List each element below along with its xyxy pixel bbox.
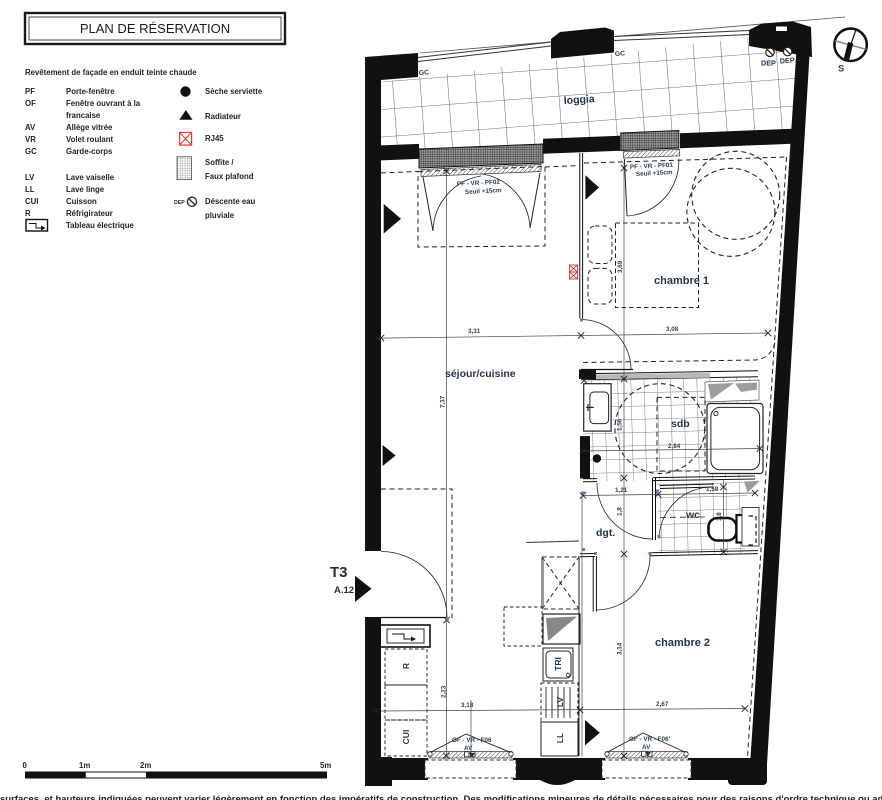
svg-text:1m: 1m xyxy=(79,761,90,770)
svg-text:2,67: 2,67 xyxy=(656,701,669,708)
svg-text:Radiateur: Radiateur xyxy=(205,112,241,121)
svg-text:3,08: 3,08 xyxy=(666,326,679,333)
svg-text:LV: LV xyxy=(25,173,35,182)
svg-text:Porte-fenêtre: Porte-fenêtre xyxy=(66,87,115,96)
svg-text:GC: GC xyxy=(419,69,430,77)
svg-text:3,18: 3,18 xyxy=(461,702,474,709)
svg-text:TRI: TRI xyxy=(553,657,563,671)
svg-text:Tableau électrique: Tableau électrique xyxy=(66,221,135,230)
svg-text:surfaces, et hauteurs indiquée: surfaces, et hauteurs indiquées peuvent … xyxy=(0,794,882,800)
svg-text:LL: LL xyxy=(25,185,35,194)
svg-text:1,56: 1,56 xyxy=(617,418,624,431)
svg-text:LL: LL xyxy=(555,733,565,743)
svg-text:Déscente eau: Déscente eau xyxy=(205,197,256,206)
svg-text:3,14: 3,14 xyxy=(617,642,624,655)
svg-text:chambre 1: chambre 1 xyxy=(654,275,709,287)
svg-text:CUI: CUI xyxy=(25,197,38,206)
svg-text:1,21: 1,21 xyxy=(615,487,628,494)
svg-text:VR: VR xyxy=(25,135,36,144)
svg-text:R: R xyxy=(25,209,31,218)
svg-text:Lave vaiselle: Lave vaiselle xyxy=(66,173,115,182)
svg-text:3,69: 3,69 xyxy=(617,260,624,273)
svg-text:Volet roulant: Volet roulant xyxy=(66,135,113,144)
svg-text:francaise: francaise xyxy=(66,111,101,120)
svg-text:Allège vitrée: Allège vitrée xyxy=(66,123,113,132)
svg-text:Réfrigirateur: Réfrigirateur xyxy=(66,209,113,218)
svg-text:Revêtement de façade en enduit: Revêtement de façade en enduit teinte ch… xyxy=(25,68,197,77)
svg-text:2m: 2m xyxy=(140,761,151,770)
svg-text:Garde-corps: Garde-corps xyxy=(66,147,113,156)
svg-text:GC: GC xyxy=(25,147,37,156)
svg-text:3,31: 3,31 xyxy=(468,328,481,335)
svg-text:Fenêtre ouvrant à la: Fenêtre ouvrant à la xyxy=(66,99,141,108)
svg-text:CUI: CUI xyxy=(401,730,411,745)
svg-text:1,8: 1,8 xyxy=(617,507,624,516)
svg-text:AV: AV xyxy=(464,745,473,752)
svg-text:T3: T3 xyxy=(330,564,348,581)
svg-text:PF: PF xyxy=(25,87,35,96)
svg-text:DEP: DEP xyxy=(174,200,185,206)
svg-text:A.12: A.12 xyxy=(334,585,354,596)
svg-text:chambre 2: chambre 2 xyxy=(655,637,710,649)
svg-text:R: R xyxy=(401,663,411,669)
svg-text:DEP: DEP xyxy=(780,55,796,65)
svg-text:dgt.: dgt. xyxy=(596,527,615,539)
svg-text:Cuisson: Cuisson xyxy=(66,197,97,206)
svg-text:AV: AV xyxy=(25,123,36,132)
svg-text:Sèche serviette: Sèche serviette xyxy=(205,87,263,96)
svg-text:OF - VR - F06: OF - VR - F06 xyxy=(452,737,492,744)
svg-text:1,58: 1,58 xyxy=(706,486,719,493)
svg-text:RJ45: RJ45 xyxy=(205,134,224,143)
svg-text:0: 0 xyxy=(23,761,28,770)
svg-text:loggia: loggia xyxy=(563,93,595,107)
svg-text:1,8: 1,8 xyxy=(716,512,723,521)
svg-text:Faux plafond: Faux plafond xyxy=(205,172,254,181)
svg-text:OF - VR - F06': OF - VR - F06' xyxy=(629,736,671,743)
svg-text:Lave linge: Lave linge xyxy=(66,185,105,194)
svg-text:5m: 5m xyxy=(320,761,331,770)
svg-text:sdb: sdb xyxy=(671,418,690,430)
svg-text:7,37: 7,37 xyxy=(440,395,447,408)
svg-text:pluviale: pluviale xyxy=(205,211,235,220)
svg-text:GC: GC xyxy=(615,50,626,58)
svg-text:2,84: 2,84 xyxy=(668,443,681,450)
svg-text:OF: OF xyxy=(25,99,36,108)
svg-text:PLAN DE RÉSERVATION: PLAN DE RÉSERVATION xyxy=(80,21,230,36)
svg-text:séjour/cuisine: séjour/cuisine xyxy=(445,368,516,380)
svg-text:2,23: 2,23 xyxy=(441,685,448,698)
svg-text:LV: LV xyxy=(555,697,565,708)
svg-text:wc: wc xyxy=(685,509,700,521)
svg-text:AV: AV xyxy=(642,744,651,751)
svg-text:Soffite /: Soffite / xyxy=(205,158,234,167)
svg-text:DEP: DEP xyxy=(761,59,776,68)
svg-text:S: S xyxy=(838,64,844,75)
